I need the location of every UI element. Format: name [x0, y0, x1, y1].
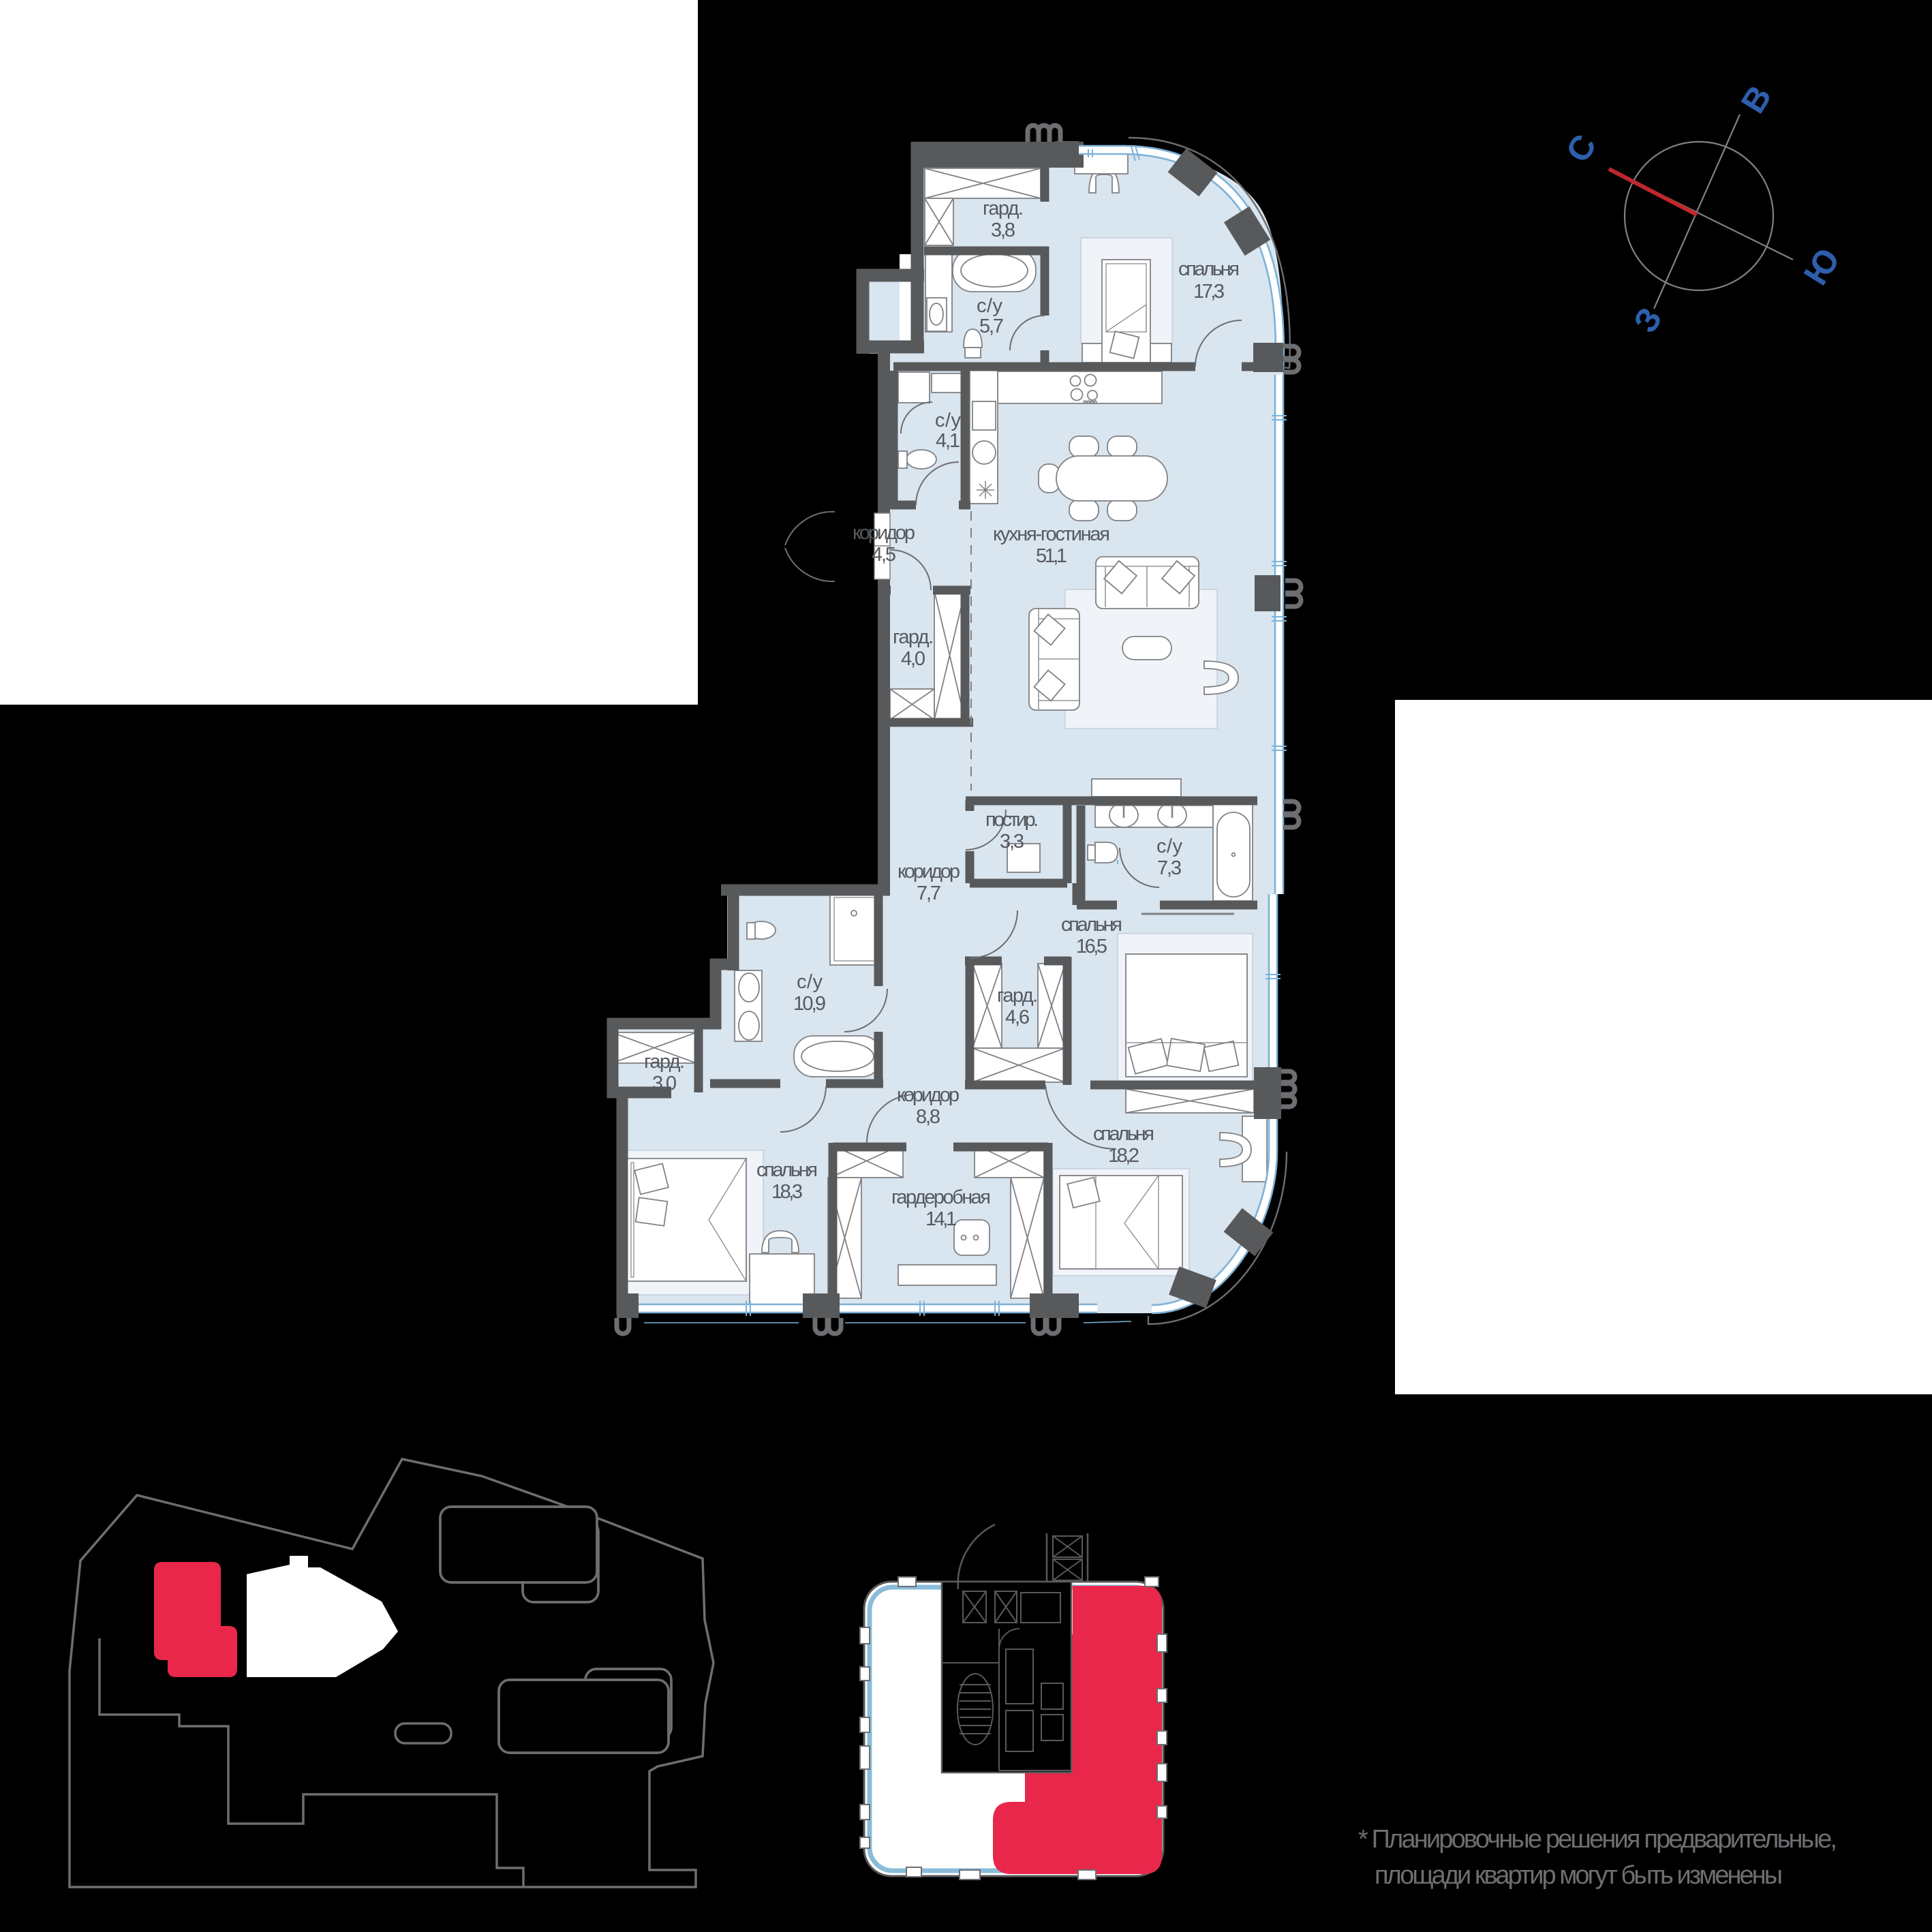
svg-text:3,3: 3,3 — [1000, 831, 1024, 853]
svg-text:10,9: 10,9 — [793, 993, 826, 1015]
svg-text:спальня: спальня — [1061, 914, 1122, 936]
svg-text:7,7: 7,7 — [917, 883, 941, 904]
svg-text:гард.: гард. — [983, 198, 1024, 219]
svg-text:гард.: гард. — [893, 626, 934, 648]
svg-text:коридор: коридор — [898, 861, 960, 883]
svg-text:18,3: 18,3 — [771, 1181, 803, 1203]
svg-text:4,1: 4,1 — [936, 430, 960, 452]
svg-text:16,5: 16,5 — [1076, 936, 1107, 957]
svg-text:постир.: постир. — [985, 809, 1039, 831]
svg-text:4,5: 4,5 — [872, 544, 896, 566]
svg-text:кухня-гостиная: кухня-гостиная — [993, 523, 1110, 545]
svg-text:* Планировочные решения предва: * Планировочные решения предварительные, — [1358, 1825, 1837, 1854]
svg-text:гард.: гард. — [644, 1051, 685, 1073]
svg-text:18,2: 18,2 — [1108, 1145, 1139, 1167]
svg-text:с/у: с/у — [935, 410, 962, 431]
svg-text:гардеробная: гардеробная — [891, 1186, 991, 1208]
svg-text:5,7: 5,7 — [979, 316, 1004, 337]
svg-text:с/у: с/у — [1156, 835, 1183, 857]
svg-text:51,1: 51,1 — [1036, 545, 1067, 567]
svg-text:3,8: 3,8 — [991, 219, 1015, 241]
svg-text:спальня: спальня — [1178, 258, 1240, 280]
svg-text:14,1: 14,1 — [925, 1208, 957, 1230]
svg-text:7,3: 7,3 — [1157, 857, 1182, 879]
svg-text:с/у: с/у — [797, 971, 823, 993]
svg-text:гард.: гард. — [997, 985, 1038, 1007]
svg-text:4,0: 4,0 — [901, 648, 925, 670]
svg-text:спальня: спальня — [1093, 1123, 1154, 1145]
svg-text:коридор: коридор — [897, 1084, 960, 1106]
svg-text:17,3: 17,3 — [1193, 281, 1225, 303]
svg-text:с/у: с/у — [977, 295, 1003, 317]
svg-text:площади квартир могут быть изм: площади квартир могут быть изменены — [1375, 1861, 1783, 1890]
svg-text:коридор: коридор — [853, 522, 915, 544]
svg-text:спальня: спальня — [756, 1159, 818, 1181]
svg-text:3,0: 3,0 — [652, 1073, 677, 1094]
svg-text:8,8: 8,8 — [916, 1106, 940, 1128]
svg-text:4,6: 4,6 — [1005, 1007, 1030, 1028]
